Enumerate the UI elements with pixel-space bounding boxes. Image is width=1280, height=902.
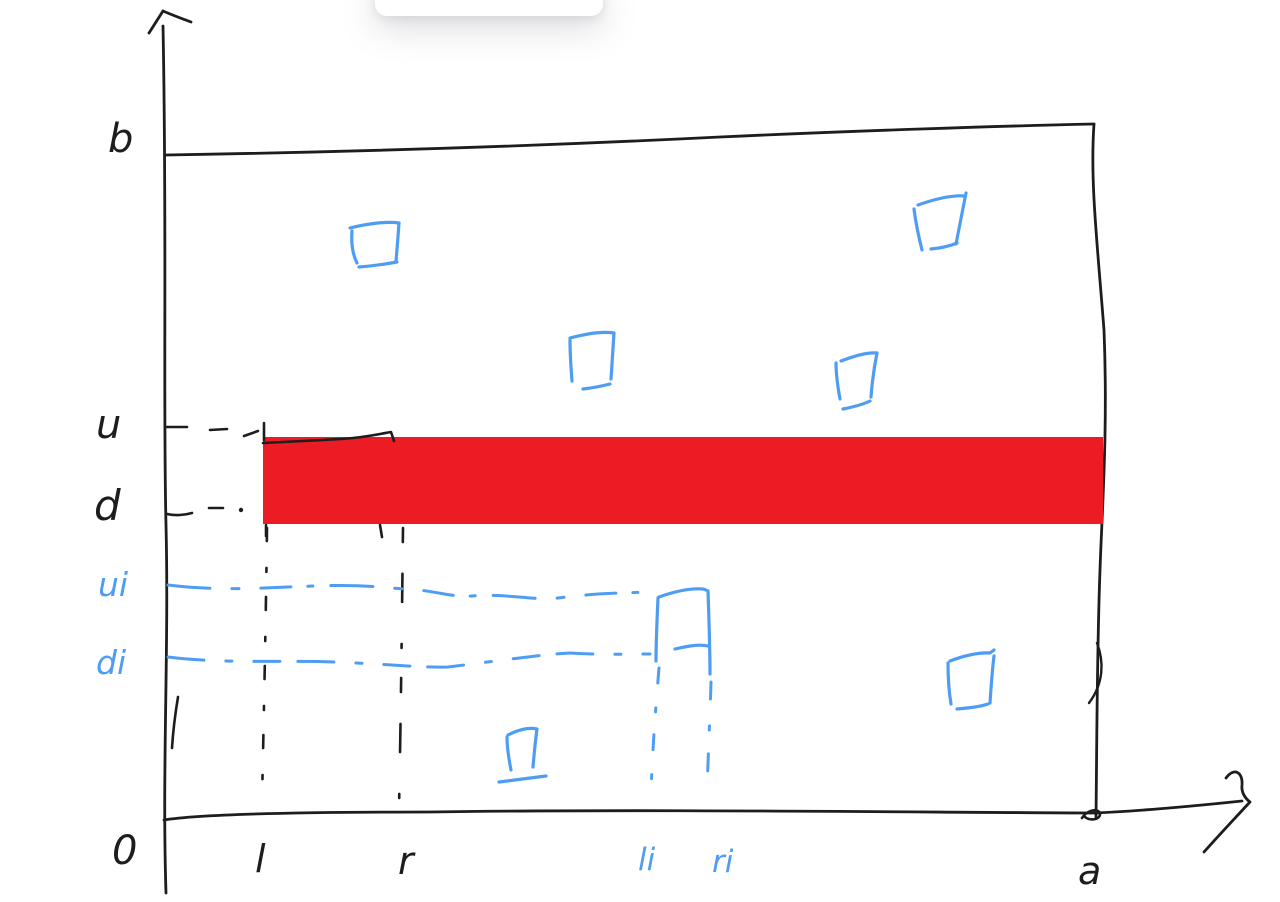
label-d: d	[94, 481, 121, 530]
blue-square-7	[499, 728, 546, 782]
x-axis-arrowhead-wing	[1204, 803, 1249, 852]
u-guide-dashes	[167, 427, 258, 436]
d-guide-dashes	[167, 508, 243, 515]
ui-dashed-line	[168, 585, 650, 599]
x-axis	[1082, 772, 1250, 852]
y-axis-double-stroke	[172, 697, 178, 748]
blue-square-2	[914, 193, 966, 250]
blue-square-1	[350, 222, 399, 267]
r-dashed-vertical	[399, 528, 403, 808]
label-a: a	[1078, 849, 1101, 893]
label-ri: ri	[712, 844, 734, 880]
drawing-canvas[interactable]: b u d ui di 0 l r li ri a	[0, 0, 1280, 902]
label-u: u	[96, 402, 121, 448]
y-axis-arrowhead-right	[163, 11, 191, 22]
blue-square-6	[948, 650, 994, 709]
y-axis-arrowhead-left	[149, 11, 163, 33]
li-dashed-vertical	[651, 668, 659, 791]
blue-guide-square	[656, 589, 710, 674]
label-r: r	[398, 839, 416, 883]
label-origin: 0	[112, 828, 137, 874]
label-li: li	[638, 842, 656, 878]
red-band	[263, 437, 1103, 524]
outer-rect-bottom-edge	[164, 811, 1095, 820]
blue-square-3	[570, 332, 614, 389]
blue-square-4	[836, 353, 877, 409]
label-l: l	[255, 837, 266, 881]
y-axis	[149, 11, 191, 893]
ri-dashed-vertical	[707, 682, 711, 796]
di-dashed-line	[168, 653, 650, 667]
label-di: di	[96, 643, 126, 682]
right-edge-stray-stroke	[1089, 643, 1102, 703]
outer-rect-top-edge	[166, 124, 1094, 155]
label-ui: ui	[98, 565, 128, 604]
label-b: b	[108, 116, 133, 162]
sketch-svg: b u d ui di 0 l r li ri a	[0, 0, 1280, 902]
x-axis-arrowhead-hook	[1226, 772, 1250, 802]
l-dashed-vertical	[262, 528, 267, 800]
